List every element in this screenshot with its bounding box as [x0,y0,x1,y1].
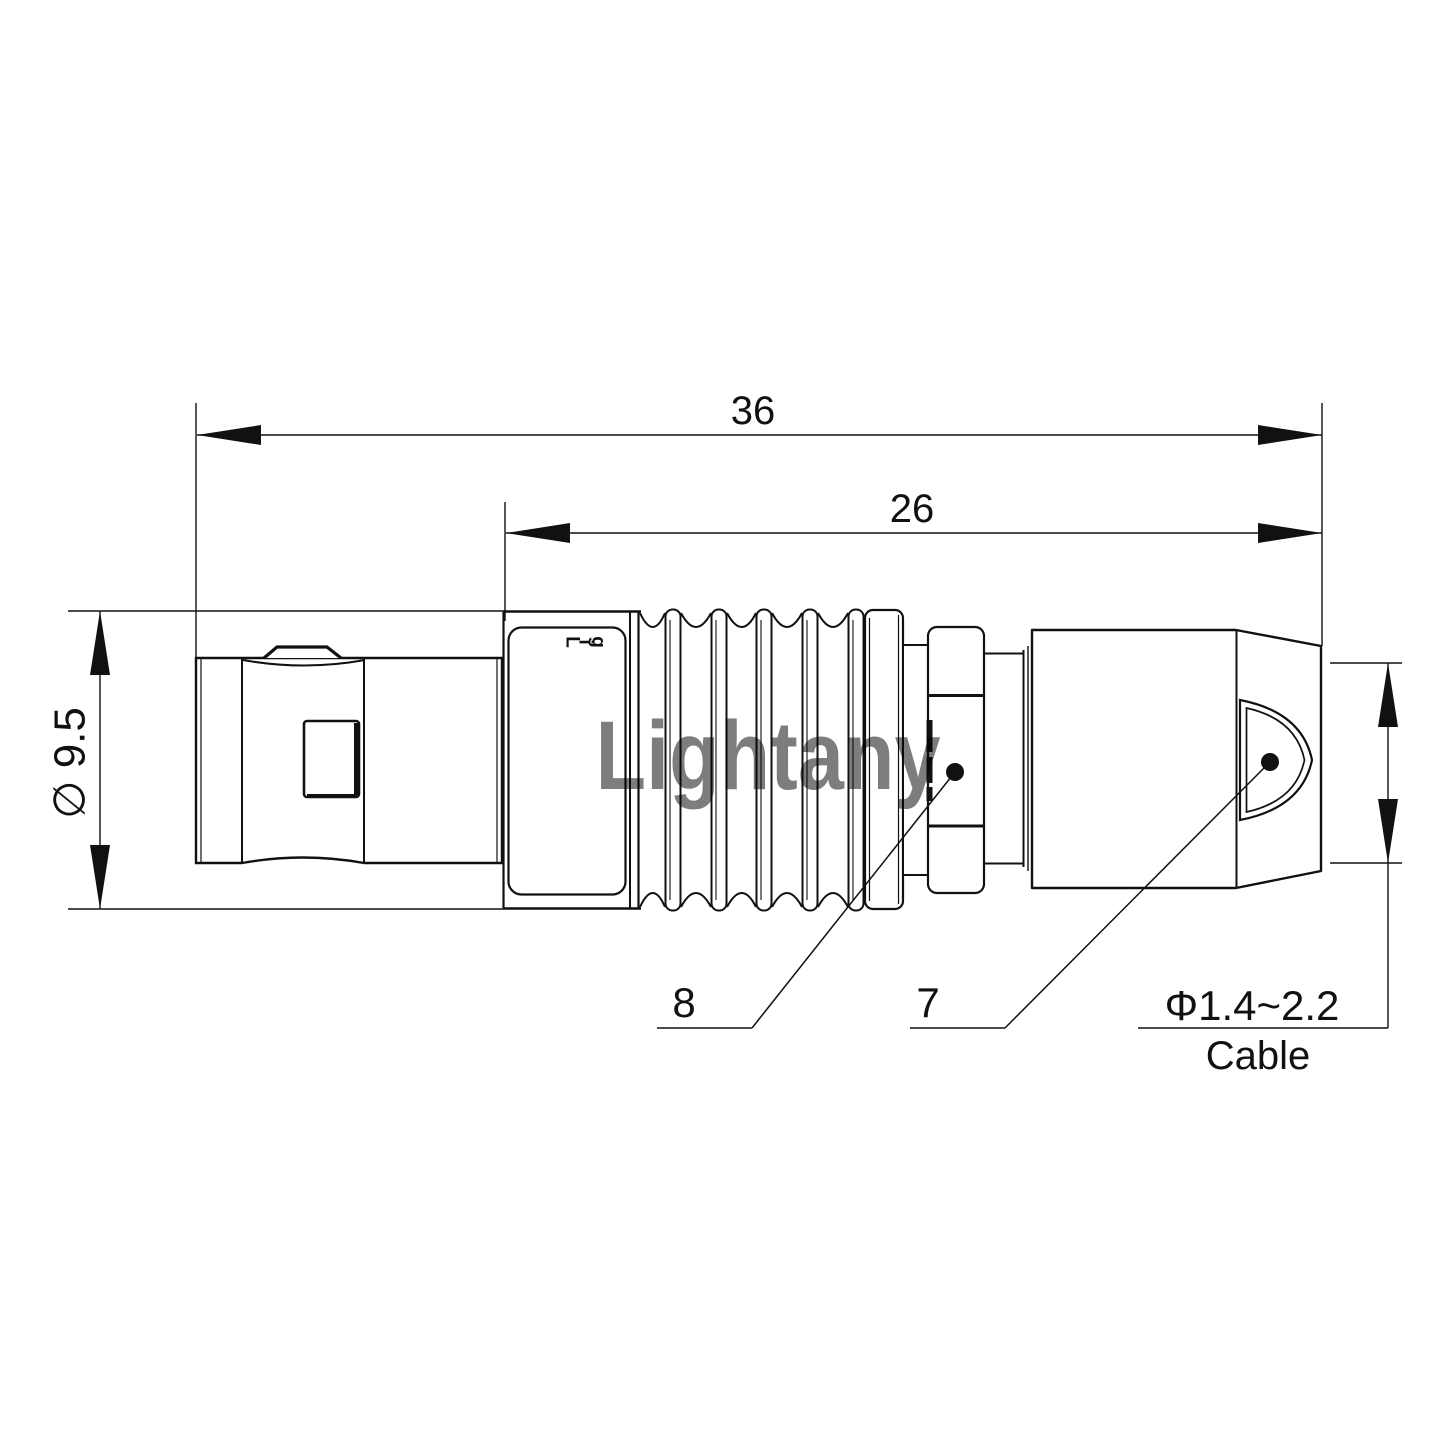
part-label-8-value: 8 [672,979,695,1026]
arrowhead-down [90,845,110,909]
arrowhead-down [1378,799,1398,863]
front-release-sleeve [196,647,502,863]
watermark-text: Lightany [596,701,941,810]
arrowhead-right [1258,523,1322,543]
latch-nub [264,647,341,658]
arrowhead-left [506,523,570,543]
brand-letter: g [588,636,609,648]
part-label-7-value: 7 [916,979,939,1026]
technical-drawing-page: 36 26 ∅ 9.5 L i [0,0,1440,1440]
dim-shell-diameter-value: ∅ 9.5 [46,707,95,819]
arrowhead-up [90,611,110,675]
arrowhead-left [197,425,261,445]
arrowhead-right [1258,425,1322,445]
dim-cable-diameter-value: Φ1.4~2.2 [1165,982,1340,1029]
latch-window [304,721,359,797]
arrowhead-up [1378,663,1398,727]
dim-rear-length-value: 26 [890,487,935,531]
dim-cable-word: Cable [1206,1034,1311,1078]
connector-technical-drawing: 36 26 ∅ 9.5 L i [0,0,1440,1440]
dim-overall-length-value: 36 [731,389,776,433]
